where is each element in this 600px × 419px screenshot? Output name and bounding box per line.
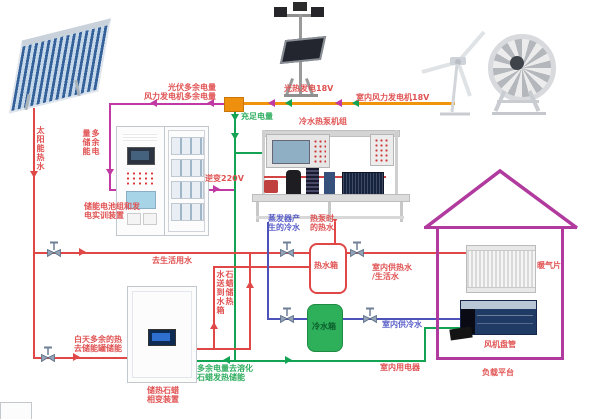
bench-post xyxy=(395,130,398,196)
radiator xyxy=(466,245,536,293)
label-to-domestic-water: 去生活用水 xyxy=(152,256,192,265)
house-roof xyxy=(420,163,582,233)
valve-icon xyxy=(280,307,294,324)
flow-arrow-down-icon xyxy=(231,114,239,125)
pipe-solar-down xyxy=(33,108,35,358)
control-screen xyxy=(272,140,310,164)
flow-arrow-down-icon xyxy=(106,169,114,180)
flow-arrow-left-icon xyxy=(219,356,230,364)
cabinet-vent xyxy=(123,133,157,141)
pipe-paraffin-out xyxy=(194,348,251,350)
label-indoor-wind-generator: 室内风力发电机18V xyxy=(356,93,429,102)
control-panel xyxy=(266,134,330,168)
pv-panel xyxy=(280,36,326,64)
valve-icon xyxy=(350,241,364,258)
label-paraffin-device: 储热石蜡 相变装置 xyxy=(147,386,179,404)
flow-arrow-up-icon xyxy=(246,277,254,288)
label-indoor-appliances: 室内用电器 xyxy=(380,363,420,372)
label-solar-generation: 光热发电18V xyxy=(284,84,333,93)
label-indoor-hot-supply: 室内供热水 /生活水 xyxy=(372,263,412,281)
pv-tracker-foot xyxy=(284,94,318,97)
pipe-paraffin-riser-left xyxy=(213,267,215,350)
house-floor xyxy=(436,357,564,360)
valve-icon xyxy=(363,307,377,324)
fan-coil-bracket xyxy=(449,327,472,341)
fan-stand-foot xyxy=(492,112,546,115)
battery-cabinet-right xyxy=(164,126,209,236)
pipe-evap-cold-down xyxy=(267,222,269,320)
cabinet-drawer xyxy=(143,213,157,225)
label-load-platform: 负载平台 xyxy=(482,368,514,377)
label-daytime-excess-heat: 白天多余的热 去储能罐储能 xyxy=(74,335,122,353)
wire-up-to-fancoil xyxy=(424,328,426,362)
compressor-unit xyxy=(286,170,301,194)
valve-icon xyxy=(280,241,294,258)
corner-device xyxy=(0,402,32,419)
wind-turbine xyxy=(418,26,500,120)
bench-tabletop xyxy=(252,194,410,202)
house-wall-right xyxy=(561,228,564,360)
battery-shelf xyxy=(171,159,204,177)
label-heat-pump-unit: 冷水热泵机组 xyxy=(299,117,347,126)
system-diagram-canvas: 光伏多余电量 风力发电机多余电量 充足电量 光热发电18V 室内风力发电机18V… xyxy=(0,0,600,419)
label-inverter: 逆变220V xyxy=(205,174,244,183)
label-excess-storage: 多余电量储能 xyxy=(82,129,100,159)
flow-arrow-left-icon xyxy=(331,99,342,107)
evaporator-coil xyxy=(306,168,319,194)
label-cold-tank: 冷水箱 xyxy=(312,322,336,331)
heat-pump-bench xyxy=(250,124,410,224)
button-grid xyxy=(374,138,389,162)
flow-arrow-right-icon xyxy=(73,353,84,361)
label-battery-cabinet: 储能电池组和发 电实训装置 xyxy=(84,202,140,220)
flow-arrow-left-icon xyxy=(281,99,292,107)
battery-shelf xyxy=(171,181,204,199)
valve-icon xyxy=(41,346,55,363)
label-excess-generation: 光伏多余电量 风力发电机多余电量 xyxy=(140,83,216,101)
instrument-panel xyxy=(370,134,394,166)
bench-leg xyxy=(400,202,403,222)
solar-collector xyxy=(2,20,114,116)
fan-hub xyxy=(510,56,524,70)
button-grid xyxy=(313,139,326,164)
paraffin-storage-cabinet xyxy=(127,286,197,383)
valve-icon xyxy=(47,241,61,258)
pv-tracker-lamp-box xyxy=(311,7,324,17)
pipe-paraffin-to-tank xyxy=(213,266,310,268)
flow-arrow-right-icon xyxy=(213,185,224,193)
label-radiator: 暖气片 xyxy=(537,261,561,270)
flow-arrow-right-icon xyxy=(79,248,90,256)
fan-stand-bar xyxy=(497,100,539,103)
indicator-lights xyxy=(125,171,155,185)
condenser-unit xyxy=(342,172,384,196)
flow-arrow-up-icon xyxy=(210,318,218,329)
label-paraffin-heat-to-tank: 石蜡储热 水送到水箱 xyxy=(216,270,234,318)
label-indoor-cold-supply: 室内供冷水 xyxy=(382,320,422,329)
battery-shelf xyxy=(171,203,204,221)
solar-collector-panel xyxy=(9,18,111,114)
flow-arrow-down-icon xyxy=(231,133,239,144)
label-hot-tank: 热水箱 xyxy=(314,261,338,270)
pv-tracker-lamp-box xyxy=(293,2,307,11)
label-sufficient-power: 充足电量 xyxy=(241,112,273,121)
plate-exchanger xyxy=(324,172,335,194)
wire-sufficient-down xyxy=(234,111,236,361)
label-excess-melt-paraffin: 多余电量去溶化 石蜡发热储能 xyxy=(197,364,253,382)
label-solar-hot-water: 太阳能热水 xyxy=(36,126,45,176)
label-evaporator-cold: 蒸发器产 生的冷水 xyxy=(268,214,300,232)
power-junction-box xyxy=(224,97,244,112)
house-eave xyxy=(424,226,577,229)
cabinet-screen xyxy=(148,329,176,346)
flow-arrow-right-icon xyxy=(285,356,296,364)
bench-leg xyxy=(256,202,259,222)
house-wall-left xyxy=(436,228,439,360)
pump-unit xyxy=(264,180,278,193)
label-fan-coil: 风机盘管 xyxy=(484,340,516,349)
flow-arrow-left-icon xyxy=(264,99,275,107)
pipe-paraffin-riser-right xyxy=(249,252,251,350)
label-heatpump-hot: 热泵时 的热水 xyxy=(310,214,334,232)
battery-shelf xyxy=(171,137,204,155)
pv-tracker-lamp-box xyxy=(274,7,287,17)
cabinet-display xyxy=(127,147,155,165)
